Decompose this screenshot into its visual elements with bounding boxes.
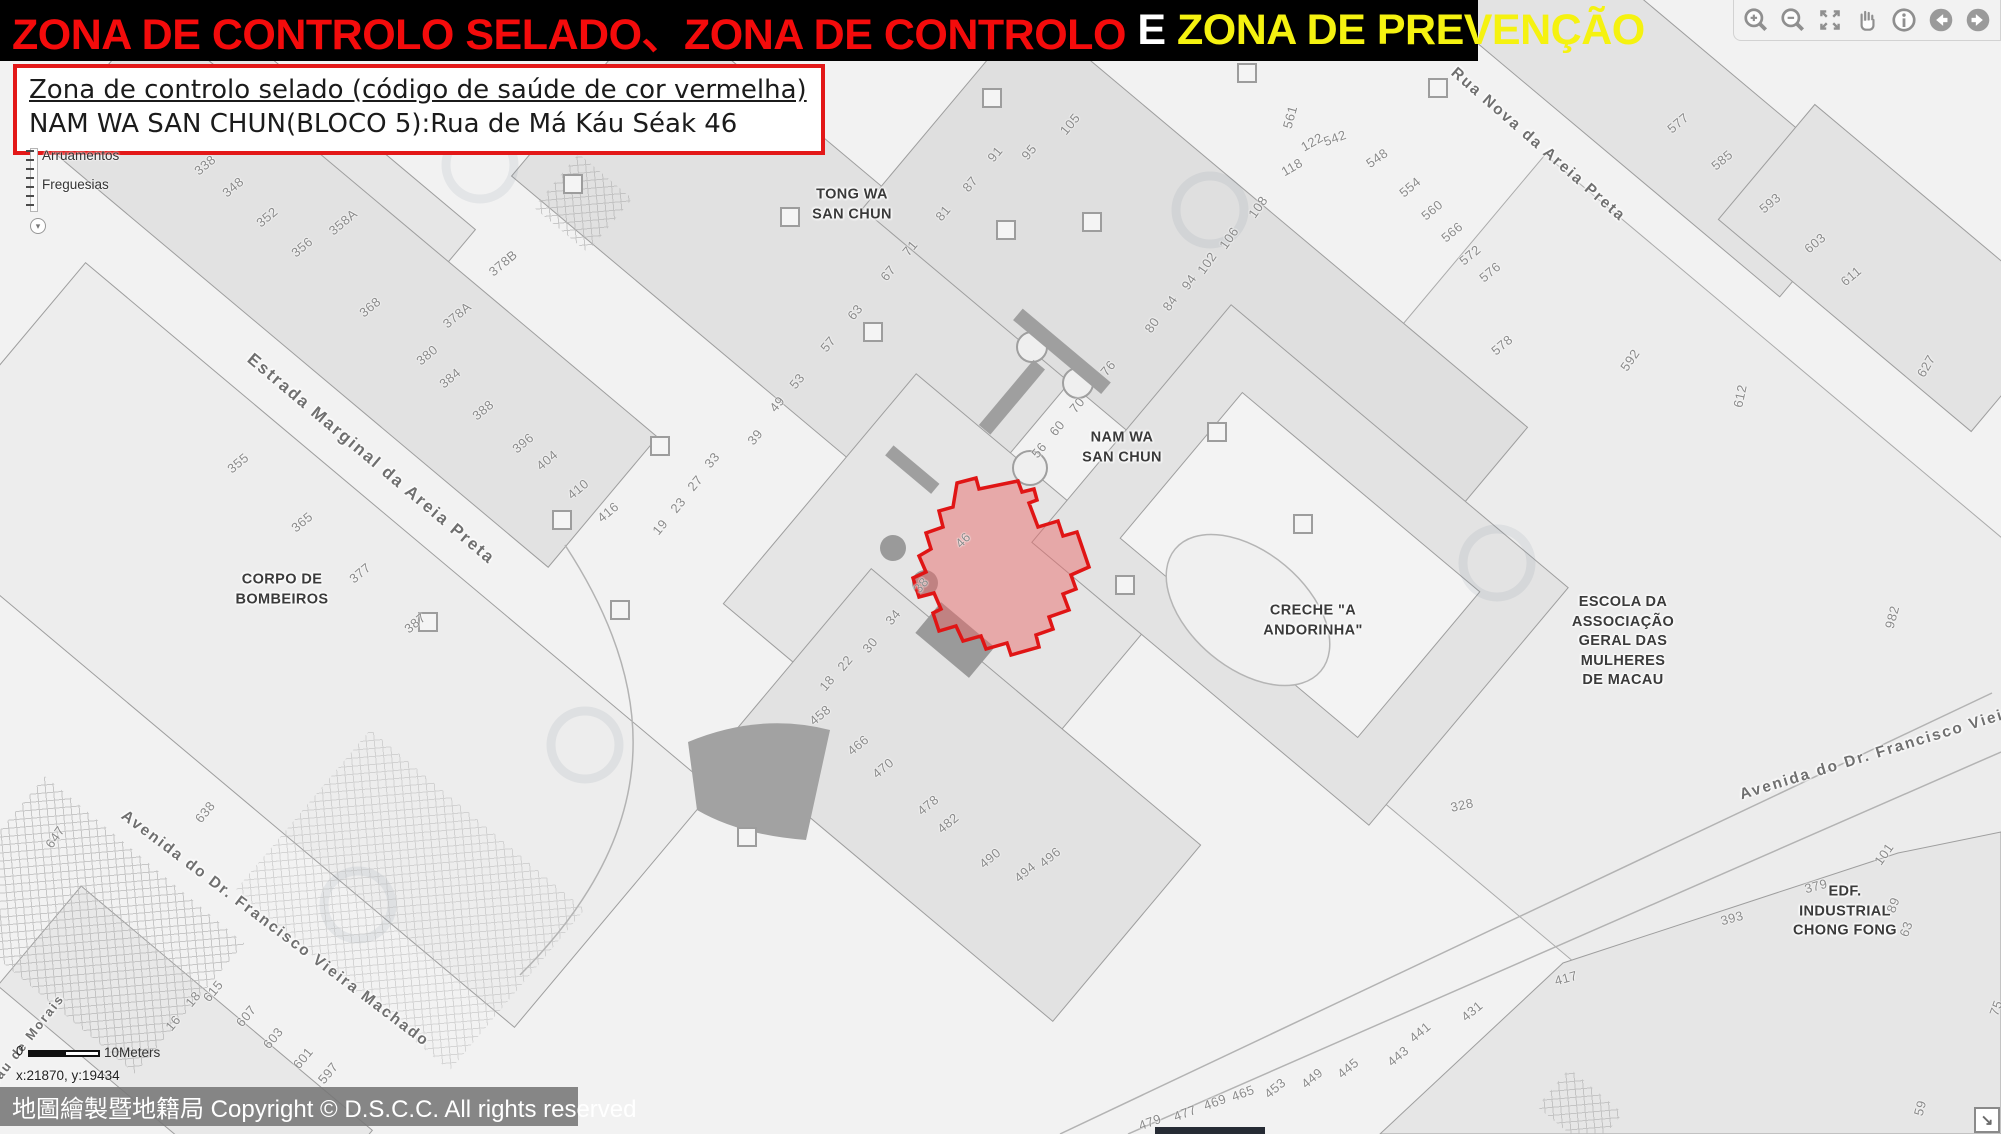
info-box-address: NAM WA SAN CHUN(BLOCO 5):Rua de Má Káu S… — [29, 108, 807, 142]
layers-collapse-button[interactable]: ▾ — [30, 218, 46, 234]
next-extent-icon[interactable] — [1962, 4, 1994, 36]
partial-widget — [1155, 1127, 1265, 1134]
survey-marker — [563, 174, 583, 194]
previous-extent-icon[interactable] — [1925, 4, 1957, 36]
layer-item-arruamentos[interactable]: Arruamentos — [42, 148, 119, 163]
map-canvas[interactable]: TONG WASAN CHUNNAM WASAN CHUNCORPO DEBOM… — [0, 0, 2001, 1134]
sealed-zone-info-box: Zona de controlo selado (código de saúde… — [13, 64, 825, 155]
page-title-segment: ZONA DE PREVENÇÃO — [1177, 6, 1645, 55]
survey-marker — [650, 436, 670, 456]
survey-marker — [1082, 212, 1102, 232]
survey-marker — [1207, 422, 1227, 442]
layer-tick — [26, 195, 34, 197]
survey-marker — [1237, 63, 1257, 83]
identify-info-icon[interactable] — [1888, 4, 1920, 36]
survey-marker — [863, 322, 883, 342]
survey-marker — [552, 510, 572, 530]
scale-start-label: 0 — [16, 1043, 23, 1058]
layer-item-freguesias[interactable]: Freguesias — [42, 177, 109, 192]
basemap-graphics — [0, 0, 2001, 1134]
survey-marker — [1293, 514, 1313, 534]
resize-corner-icon[interactable]: ↘ — [1974, 1107, 2000, 1133]
survey-marker — [418, 612, 438, 632]
info-box-title: Zona de controlo selado (código de saúde… — [29, 74, 807, 108]
layer-tick — [26, 159, 34, 161]
zoom-in-icon[interactable] — [1740, 4, 1772, 36]
survey-marker — [982, 88, 1002, 108]
layer-tick — [26, 150, 34, 152]
survey-marker — [996, 220, 1016, 240]
cursor-coordinates: x:21870, y:19434 — [16, 1068, 120, 1083]
scale-segment-filled — [28, 1050, 64, 1057]
survey-marker — [780, 207, 800, 227]
full-extent-icon[interactable] — [1814, 4, 1846, 36]
layer-tick — [26, 204, 34, 206]
layer-tick — [26, 168, 34, 170]
page-title-segment: ZONA DE CONTROLO SELADO、ZONA DE CONTROLO — [12, 0, 1137, 62]
pan-hand-icon[interactable] — [1851, 4, 1883, 36]
layer-tick — [26, 186, 34, 188]
map-application: TONG WASAN CHUNNAM WASAN CHUNCORPO DEBOM… — [0, 0, 2001, 1134]
scale-segment-open — [64, 1050, 100, 1057]
layer-tick — [26, 177, 34, 179]
copyright-footer: 地圖繪製暨地籍局 Copyright © D.S.C.C. All rights… — [0, 1087, 578, 1126]
survey-marker — [1428, 78, 1448, 98]
map-toolbar — [1733, 0, 2001, 41]
survey-marker — [1115, 575, 1135, 595]
layers-panel-strip — [30, 148, 38, 212]
page-title: ZONA DE CONTROLO SELADO、ZONA DE CONTROLO… — [0, 0, 1478, 61]
page-title-segment: E — [1137, 6, 1177, 55]
survey-marker — [610, 600, 630, 620]
survey-marker — [737, 827, 757, 847]
scale-end-label: 10Meters — [104, 1045, 160, 1060]
zoom-out-icon[interactable] — [1777, 4, 1809, 36]
